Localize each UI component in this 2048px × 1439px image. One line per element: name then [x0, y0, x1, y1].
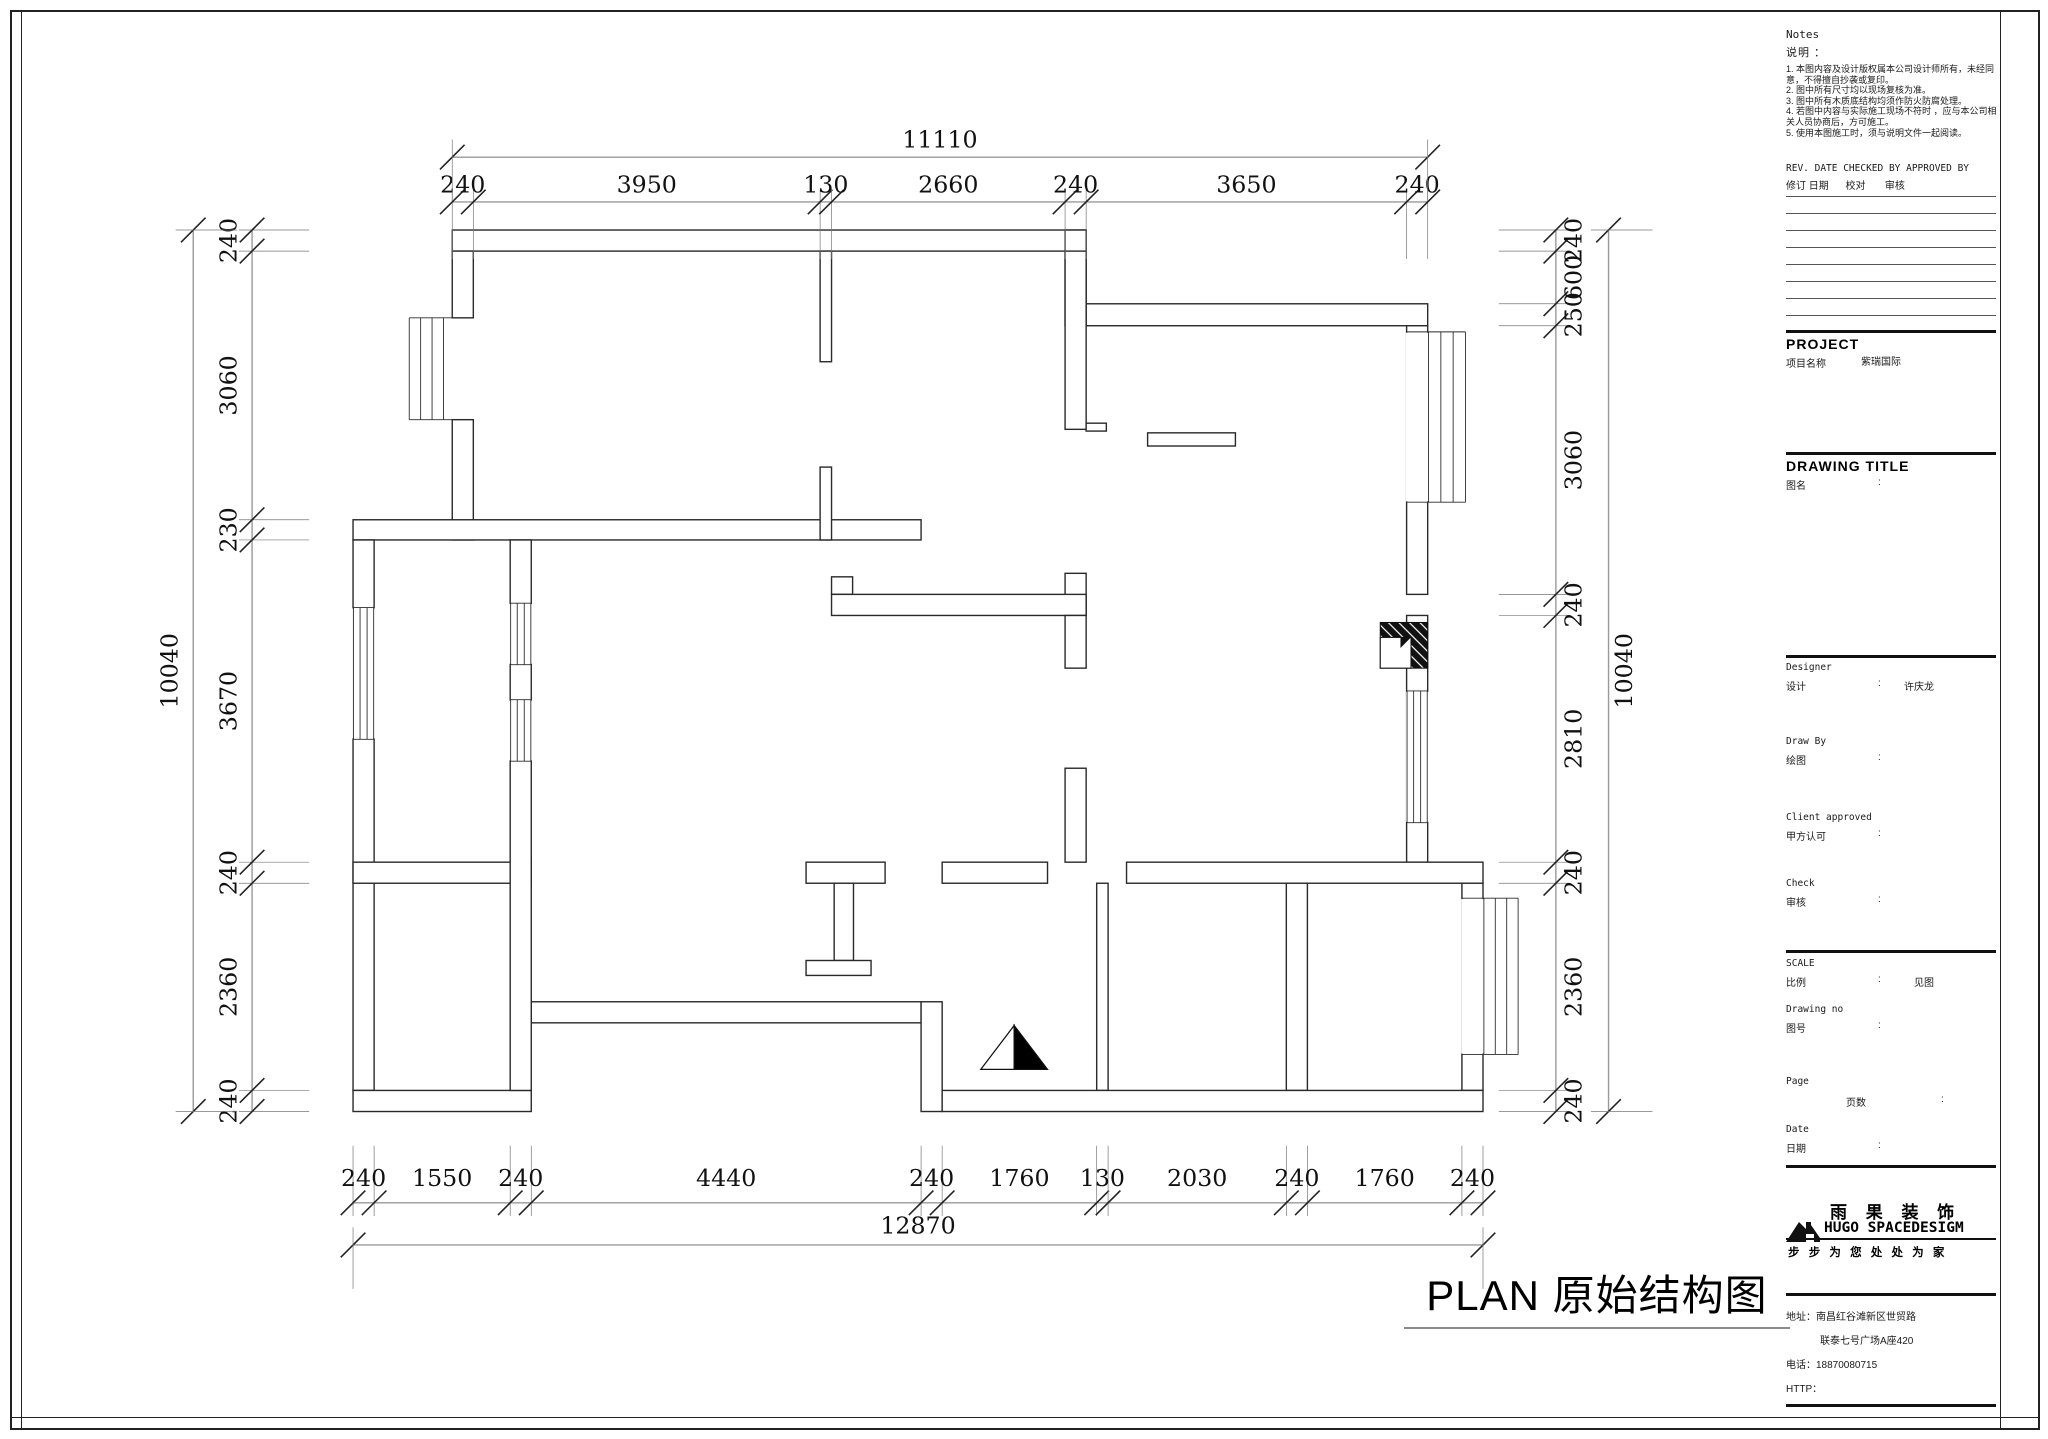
brand-underline [1786, 1238, 1996, 1240]
designer-name: 许庆龙 [1904, 678, 1934, 693]
project-name: 紫瑞国际 [1861, 353, 1901, 368]
dimension-label: 1760 [989, 1164, 1049, 1192]
wall [942, 1090, 1483, 1111]
check-label-cn: 审核 [1786, 894, 1806, 909]
dimension-label: 240 [1395, 170, 1440, 198]
colon: : [1878, 894, 1881, 905]
page-label-en: Page [1786, 1076, 1809, 1087]
dimension-label: 240 [214, 1078, 242, 1123]
note-item: 4. 若图中内容与实际施工现场不符时 ，应与本公司相关人员协商后，方可施工。 [1786, 106, 1998, 127]
dimension-label: 240 [440, 170, 485, 198]
drawing-sheet: { "colon": ":", "plan": { "title": "PLAN… [0, 0, 2048, 1439]
notes-label-cn: 说明 ： [1786, 44, 1826, 60]
plan-title: PLAN 原始结构图 [1404, 1262, 1790, 1329]
section-rule [1786, 452, 1996, 455]
dimension-label: 2810 [1559, 709, 1587, 769]
note-item: 2. 图中所有尺寸均以现场复核为准。 [1786, 85, 1998, 96]
drawing-title-colon: : [1878, 477, 1881, 488]
http: HTTP： [1786, 1380, 1822, 1395]
dimension-label: 240 [1559, 1078, 1587, 1123]
border-right [2038, 10, 2040, 1430]
wall [1086, 423, 1106, 431]
wall [353, 862, 531, 883]
dimension-label: 240 [341, 1164, 386, 1192]
bay-window-left-bedroom [409, 318, 452, 420]
colon: : [1941, 1094, 1944, 1105]
dimension-label: 2360 [214, 957, 242, 1017]
wall [942, 862, 1047, 883]
dimension-label: 240 [1274, 1164, 1319, 1192]
check-label-en: Check [1786, 878, 1815, 889]
title-block: Notes 说明 ： 1. 本图内容及设计版权属本公司设计师所有，未经同意，不得… [1786, 0, 1998, 1439]
walls [353, 230, 1483, 1111]
dimension-label: 240 [1450, 1164, 1495, 1192]
rev-table-line [1786, 264, 1996, 265]
drawby-label-en: Draw By [1786, 736, 1826, 747]
dimension-label: 3060 [214, 355, 242, 415]
wall [832, 577, 853, 595]
rev-table-line [1786, 213, 1996, 214]
drawingno-label-cn: 图号 [1786, 1020, 1806, 1035]
rev-table-line [1786, 230, 1996, 231]
section-rule [1786, 1404, 1996, 1407]
address-line1: 地址：南昌红谷滩新区世贸路 [1786, 1308, 1916, 1323]
wall [531, 1002, 921, 1023]
drawing-title-label-cn: 图名 [1786, 477, 1806, 492]
client-label-cn: 甲方认可 [1786, 828, 1826, 843]
rev-table-line [1786, 315, 1996, 316]
wall [921, 1002, 942, 1112]
dimension-label: 3650 [1216, 170, 1276, 198]
phone: 电话：18870080715 [1786, 1356, 1877, 1371]
dimension-label: 1760 [1355, 1164, 1415, 1192]
dimension-label: 130 [1080, 1164, 1125, 1192]
flue-shaft [1380, 622, 1427, 668]
date-label-en: Date [1786, 1124, 1809, 1135]
colon: : [1878, 828, 1881, 839]
dimension-label: 240 [1559, 850, 1587, 895]
wall [452, 230, 1086, 251]
dimension-label: 130 [803, 170, 848, 198]
dimension-label: 3670 [214, 671, 242, 731]
dimension-label: 2030 [1167, 1164, 1227, 1192]
colon: : [1878, 678, 1881, 689]
wall [820, 251, 831, 362]
wall [353, 1090, 531, 1111]
dimension-label: 3060 [1559, 430, 1587, 490]
wall [1127, 862, 1483, 883]
dimension-label: 10040 [1610, 633, 1638, 708]
section-rule [1786, 950, 1996, 953]
wall [806, 961, 871, 976]
wall [1286, 883, 1307, 1090]
scale-label-cn: 比例 [1786, 974, 1806, 989]
border-titleblock-right [2000, 10, 2001, 1428]
wall [834, 883, 853, 960]
dimension-label: 3950 [617, 170, 677, 198]
colon: : [1878, 752, 1881, 763]
wall [806, 862, 885, 883]
wall [1065, 251, 1086, 429]
wall [1097, 883, 1108, 1090]
dimension-label: 240 [214, 850, 242, 895]
wall [1086, 304, 1428, 326]
dimension-label: 230 [214, 507, 242, 552]
scale-value: 见图 [1914, 974, 1934, 989]
designer-label-en: Designer [1786, 662, 1832, 673]
note-item: 1. 本图内容及设计版权属本公司设计师所有，未经同意，不得擅自抄袭或复印。 [1786, 64, 1998, 85]
rev-header-cn: 修订 日期 校对 审核 [1786, 177, 1905, 192]
section-rule [1786, 1165, 1996, 1168]
client-label-en: Client approved [1786, 812, 1872, 823]
dimension-label: 240 [1559, 582, 1587, 627]
note-item: 3. 图中所有木质底结构均须作防火防腐处理。 [1786, 96, 1998, 107]
drawby-label-cn: 绘图 [1786, 752, 1806, 767]
rev-table-line [1786, 281, 1996, 282]
wall [1148, 433, 1236, 446]
rev-table-line [1786, 247, 1996, 248]
wall [452, 251, 473, 318]
dimension-label: 240 [498, 1164, 543, 1192]
drawingno-label-en: Drawing no [1786, 1004, 1843, 1015]
rev-table-line [1786, 298, 1996, 299]
dimension-label: 1550 [412, 1164, 472, 1192]
section-rule [1786, 1293, 1996, 1296]
address-line2: 联泰七号广场A座420 [1820, 1332, 1913, 1347]
notes-label-en: Notes [1786, 28, 1819, 41]
note-item: 5. 使用本图施工时，须与说明文件一起阅读。 [1786, 128, 1998, 139]
rev-table-line [1786, 196, 1996, 197]
section-rule [1786, 655, 1996, 658]
dimension-label: 240 [909, 1164, 954, 1192]
wall [832, 594, 1087, 615]
notes-list: 1. 本图内容及设计版权属本公司设计师所有，未经同意，不得擅自抄袭或复印。 2.… [1786, 64, 1998, 138]
wall [1065, 615, 1086, 668]
dimension-label: 2660 [918, 170, 978, 198]
floor-plan: 2403950130266024036502401111024015502404… [0, 0, 1855, 1439]
brand-slogan: 步 步 为 您 处 处 为 家 [1788, 1244, 1947, 1260]
section-rule [1786, 330, 1996, 333]
dimension-label: 12870 [880, 1212, 955, 1240]
dimension-label: 4440 [696, 1164, 756, 1192]
wall [1065, 768, 1086, 862]
designer-label-cn: 设计 [1786, 678, 1806, 693]
project-label-cn: 项目名称 [1786, 355, 1826, 370]
colon: : [1878, 974, 1881, 985]
brand-name-en: HUGO SPACEDESIGM [1824, 1220, 1964, 1236]
dimension-label: 240 [1053, 170, 1098, 198]
dimension-label: 11110 [902, 125, 977, 153]
colon: : [1878, 1020, 1881, 1031]
drawing-title-label-en: DRAWING TITLE [1786, 458, 1909, 474]
colon: : [1878, 1140, 1881, 1151]
rev-header-en: REV. DATE CHECKED BY APPROVED BY [1786, 163, 1969, 174]
dimension-label: 240 [214, 218, 242, 263]
scale-label-en: SCALE [1786, 958, 1815, 969]
dimension-label: 250 [1559, 292, 1587, 337]
project-label-en: PROJECT [1786, 336, 1859, 352]
dimension-label: 10040 [155, 633, 183, 708]
dimension-label: 2360 [1559, 957, 1587, 1017]
page-label-cn: 页数 [1846, 1094, 1866, 1109]
date-label-cn: 日期 [1786, 1140, 1806, 1155]
entry-marker [981, 1025, 1048, 1069]
wall [820, 467, 831, 540]
wall [353, 520, 921, 540]
